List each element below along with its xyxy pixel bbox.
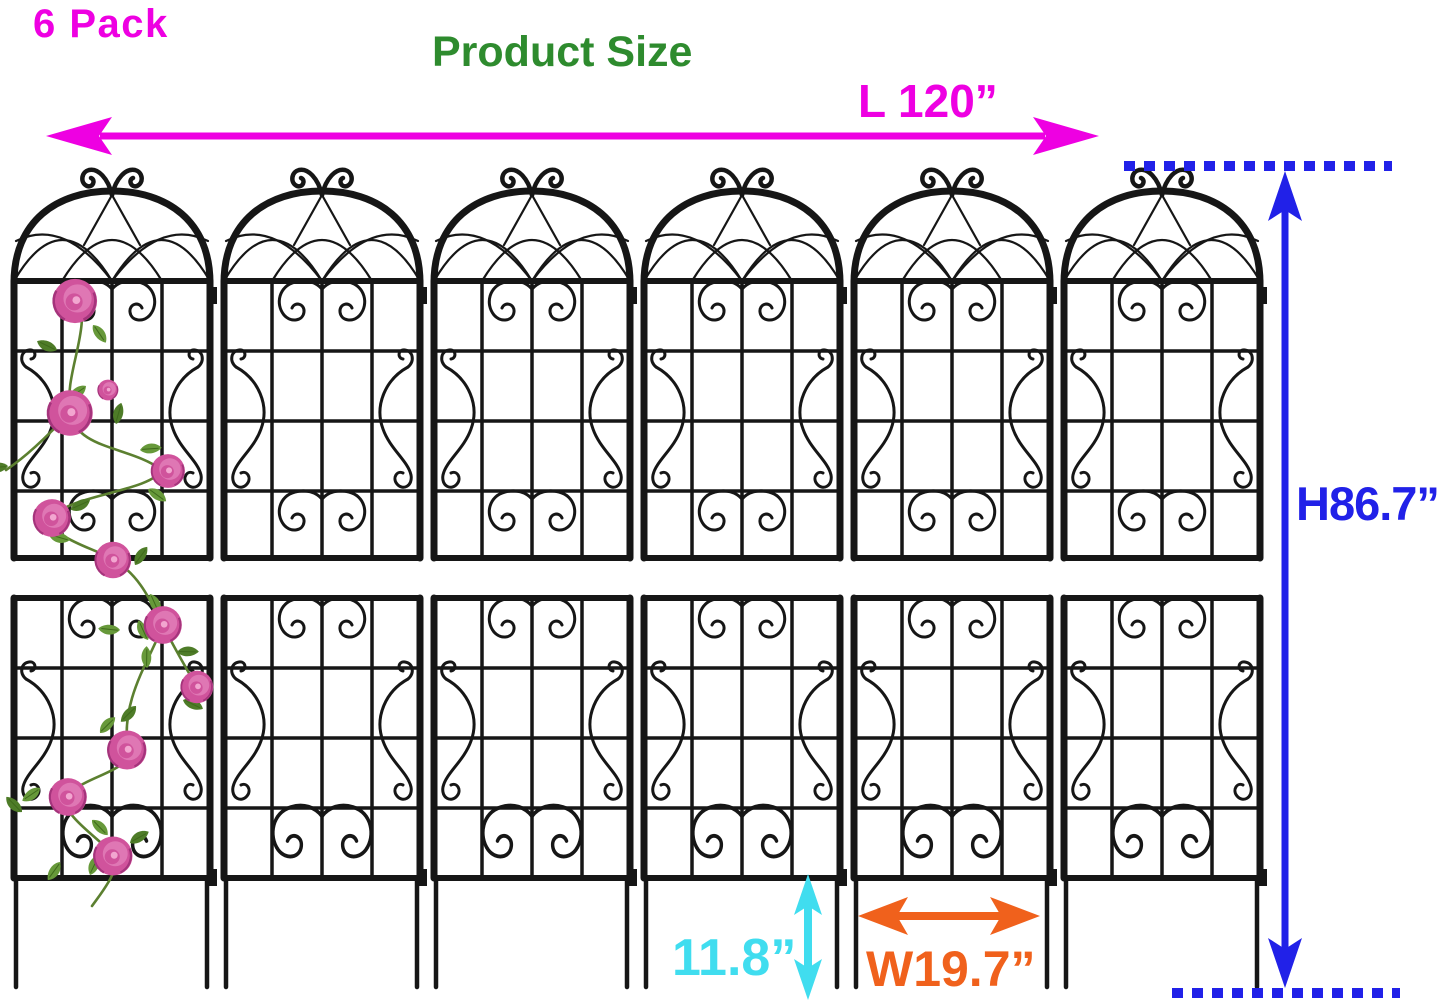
height-arrow [1268, 171, 1302, 988]
product-size-title: Product Size [432, 31, 692, 74]
panel-width-arrow [858, 897, 1040, 935]
leg-height-label: 11.8” [672, 932, 796, 984]
panel-connector-clips [209, 287, 1267, 886]
pack-count-label: 6 Pack [33, 4, 169, 44]
length-label: L 120” [858, 78, 998, 124]
dimension-annotations [0, 0, 1445, 1002]
leg-height-arrow [794, 874, 822, 1000]
panel-width-label: W19.7” [866, 944, 1036, 994]
product-size-diagram: 6 Pack Product Size L 120” H86.7” 11.8” … [0, 0, 1445, 1002]
height-label: H86.7” [1296, 480, 1439, 527]
